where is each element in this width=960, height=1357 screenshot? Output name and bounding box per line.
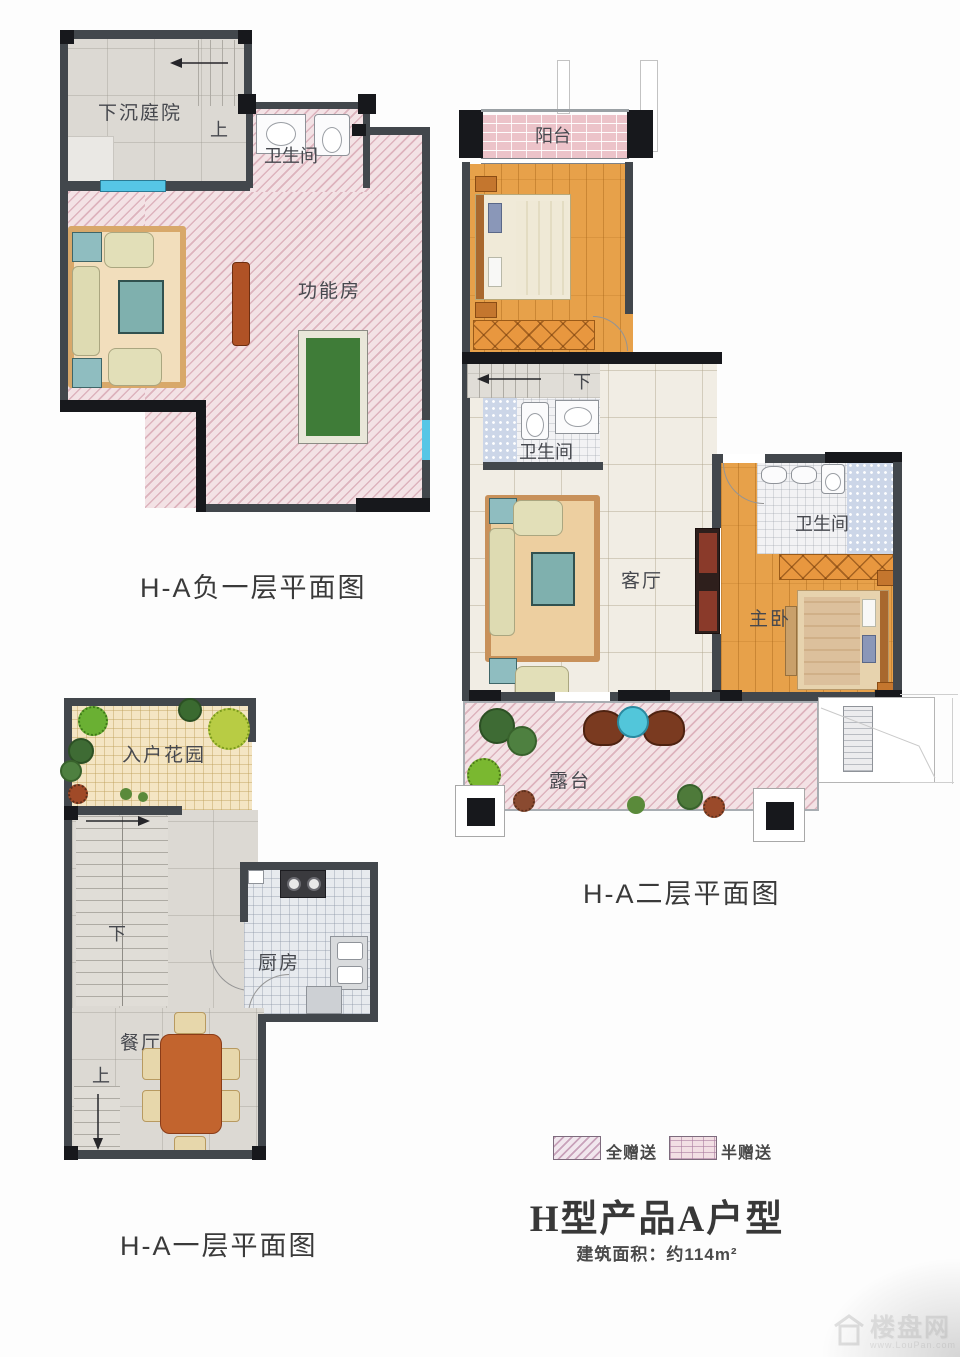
bed-blanket [804,597,860,685]
plant [507,726,537,756]
plant [208,708,250,750]
stairs-up-label: 上 [210,116,228,142]
column-base [753,788,805,842]
wall-segment [240,862,378,870]
sink-bowl [564,407,592,427]
stairs-down-label: 下 [108,920,126,946]
column [766,802,794,830]
room-label-master: 主卧 [749,604,791,631]
room-label-living: 客厅 [621,566,663,593]
site-line [900,782,954,783]
courtyard-recess [62,136,114,186]
plant [178,698,202,722]
wall-segment [483,462,603,470]
legend-swatch-half-gift [669,1136,717,1160]
wall-segment [363,102,370,188]
wall-pier [352,124,366,136]
burner [287,877,301,891]
room-label-bathroom1: 卫生间 [519,438,573,464]
sheet-title: H型产品A户型 [527,1188,787,1242]
column-base [455,785,505,837]
coffee-table [531,552,575,606]
toilet [821,464,845,494]
chair [174,1012,206,1034]
sofa [72,266,100,356]
wall-pier [60,30,74,44]
room-function-fill [360,134,430,194]
caption-floor1: H-A一层平面图 [120,1224,318,1263]
wall-segment [60,190,68,412]
room-label-courtyard: 下沉庭院 [98,98,182,125]
kitchen-sink [330,936,368,990]
sideboard [232,262,250,346]
wall-segment [250,102,370,109]
wall-pier [64,806,78,820]
neighbour-outline [557,60,570,114]
wall-segment [462,162,470,700]
wall-pier [600,352,722,364]
wall-pier [196,400,206,512]
shower-bluetile [847,462,899,554]
room-label-function: 功能房 [298,276,361,303]
pillow [488,203,502,233]
pool-table-felt [306,338,360,436]
pillow [862,599,876,627]
wall-segment [625,162,633,314]
wall-segment [258,1014,266,1159]
wall-segment [370,862,378,1022]
armchair [108,348,162,386]
legend-label-full-gift: 全赠送 [606,1139,657,1163]
fridge [306,986,342,1014]
site-line [900,694,958,695]
terrace-table [617,706,649,738]
nightstand [475,176,497,192]
plant [138,792,148,802]
plan-floor1: 入户花园 下 厨房 餐厅 [60,698,390,1168]
tv-cabinet-bottom [699,591,717,631]
sink-vanity [555,400,599,434]
window-glass [100,180,166,192]
ac-platform [818,697,935,783]
room-label-garden: 入户花园 [122,740,206,767]
stairs-right-arrow-icon [86,814,150,832]
coffee-table [118,280,164,334]
plant [627,796,645,814]
sofa [489,528,515,636]
plant [677,784,703,810]
door-gap [555,692,610,701]
bed-blanket [516,201,568,295]
stairs-left-arrow-icon [170,56,228,74]
armchair [513,500,563,536]
armchair [104,232,154,268]
wall-pier [60,400,206,412]
bed-headboard [476,195,484,299]
area-label: 建筑面积：约114m² [527,1240,787,1265]
column [467,798,495,826]
caption-basement: H-A负一层平面图 [140,566,367,605]
platform-lines [819,698,936,784]
room-label-balcony: 阳台 [535,122,571,148]
room-label-bathroom2: 卫生间 [795,510,849,536]
legend-swatch-full-gift [553,1136,601,1160]
toilet [314,114,350,156]
wall-segment [64,812,72,1158]
side-table [72,232,102,262]
wall-segment [64,806,182,815]
wall-segment [64,698,256,706]
burner [307,877,321,891]
room-label-kitchen: 厨房 [258,948,300,975]
wall-pier [356,498,430,512]
terrace-chair [643,710,685,746]
bed [797,590,889,690]
window-glass [422,420,430,460]
wall-pier [238,30,252,44]
plant [78,706,108,736]
tv-cabinet-top [699,533,717,573]
stairs-down-arrow-icon [92,1094,104,1155]
plant [513,790,535,812]
wall-segment [60,30,252,39]
room-label-terrace: 露台 [549,766,591,793]
wall-pier [825,452,902,463]
side-table [489,658,517,684]
wall-pier [358,94,376,114]
toilet-bowl [825,473,841,491]
plant [60,760,82,782]
sink-bowl [791,466,817,484]
tv-cabinet [695,528,720,634]
wall-segment [356,127,430,135]
pillow [488,257,502,287]
door-gap [723,454,765,463]
wall-pier [238,94,256,114]
sink-basin [337,966,363,984]
nightstand [475,302,497,318]
plant [703,796,725,818]
stove [280,870,326,898]
wall-segment [64,1150,266,1159]
room-label-bathroom: 卫生间 [264,142,318,168]
bath-bluetile [483,398,517,464]
balcony-rail [481,109,629,112]
wardrobe [473,320,595,350]
site-line [952,698,953,784]
toilet [521,402,549,440]
bed-headboard [880,591,888,689]
stairs-down-arrow-icon [477,372,541,390]
plan-floor2: 阳台 下 卫生间 [455,58,960,858]
wall-segment [246,102,253,188]
plan-basement: 卫生间 下沉庭院 上 功能房 [60,30,432,522]
wall-segment [60,30,68,190]
stairs-down-label: 下 [573,368,591,394]
wall-segment [893,462,902,702]
dining-table [160,1034,222,1134]
floorplan-sheet: 卫生间 下沉庭院 上 功能房 H-A负一层平面图 [0,0,960,1357]
toilet-bowl [526,413,544,437]
sink-basin [337,942,363,960]
stair-rail [122,816,123,1006]
bed [475,194,571,300]
wall-segment [248,698,256,742]
caption-floor2: H-A二层平面图 [583,872,781,911]
pillow [862,635,876,663]
legend-label-half-gift: 半赠送 [721,1139,772,1163]
wall-pier [252,1146,266,1160]
wall-pier [627,110,653,158]
wall-pier [459,110,483,158]
corner-shading [820,1257,960,1357]
toilet-bowl [322,127,342,153]
wall-pier [64,1146,78,1160]
room-function-fill [145,190,430,508]
kitchen-counter [248,870,264,884]
wall-pier [462,352,602,364]
plant [68,784,88,804]
side-table [72,358,102,388]
wall-segment [240,862,248,922]
sink-bowl [761,466,787,484]
wall-segment [712,463,721,528]
plant [120,788,132,800]
stairs-up-label: 上 [92,1062,110,1088]
pool-table [298,330,368,444]
